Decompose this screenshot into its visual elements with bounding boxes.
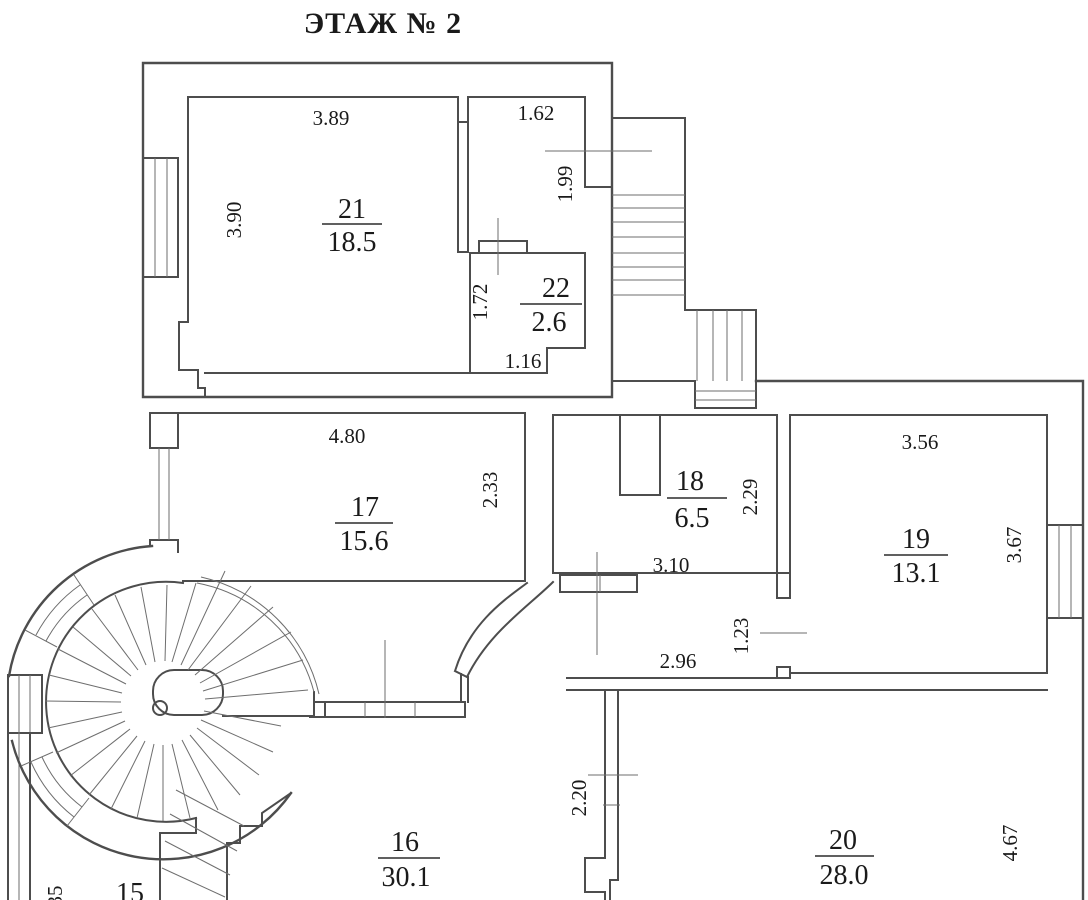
window-room19-right (1047, 525, 1083, 618)
room18-number: 18 (676, 466, 704, 497)
door-sill-room18 (560, 575, 637, 592)
window-room17-left (150, 448, 178, 540)
spiral-newel-post (153, 701, 167, 715)
room18-area: 6.5 (675, 503, 710, 534)
window-tower-west (8, 675, 42, 733)
room18-width-dim: 3.10 (653, 553, 690, 577)
labels: ЭТАЖ № 2 21 18.5 3.89 3.90 1.62 1.99 22 … (43, 7, 1026, 900)
room21-width-dim: 3.89 (313, 106, 350, 130)
walls (143, 63, 1083, 900)
room22-width-dim: 1.16 (505, 349, 542, 373)
window-room21-left (143, 158, 178, 277)
floor-title: ЭТАЖ № 2 (304, 7, 462, 40)
entry-height-dim: 1.99 (553, 166, 577, 203)
room15-number: 15 (116, 878, 144, 900)
room19-width-dim: 3.56 (902, 430, 939, 454)
sill-room16-divisions (365, 702, 415, 717)
room17-area: 15.6 (340, 526, 389, 557)
window-tower-west-panes (19, 675, 30, 733)
room17-height-dim: 2.33 (478, 472, 502, 509)
room20-number: 20 (829, 825, 857, 856)
stair-treads-vertical-flight (612, 195, 685, 295)
room21-height-dim: 3.90 (222, 202, 246, 239)
sill-room16 (310, 692, 465, 717)
room21-area: 18.5 (328, 227, 377, 258)
wall-outer-right (756, 381, 1083, 900)
room17-number: 17 (351, 492, 379, 523)
room19-area: 13.1 (892, 558, 941, 589)
wall-16-20-dim: 2.20 (567, 780, 591, 817)
floor-plan-drawing: ЭТАЖ № 2 21 18.5 3.89 3.90 1.62 1.99 22 … (0, 0, 1088, 900)
room19-number: 19 (902, 524, 930, 555)
room22-height-dim: 1.72 (468, 284, 492, 321)
wall-slot-21-22 (458, 97, 468, 252)
tower-east-rail-arcs (197, 577, 319, 694)
tick-wall-16-20 (588, 775, 638, 805)
room19-height-dim: 3.67 (1002, 527, 1026, 564)
window-room19-right-panes (1059, 525, 1071, 618)
wall-entry-niche (585, 97, 612, 187)
stair-treads-turn-flight (697, 310, 742, 381)
room22-number: 22 (542, 273, 570, 304)
spiral-treads-southeast (182, 711, 281, 810)
room20-area: 28.0 (820, 860, 869, 891)
spiral-hub (153, 670, 223, 715)
room16-number: 16 (391, 827, 419, 858)
window-room17-left-panes (159, 448, 169, 540)
window-room21-left-panes (155, 158, 167, 277)
door-height-dim: 1.23 (729, 618, 753, 655)
room16-area: 30.1 (382, 862, 431, 893)
stair-treads-lower-stub (695, 391, 756, 400)
exit-channel-right-steps (227, 793, 291, 900)
room20-height-dim: 4.67 (998, 825, 1022, 862)
left-edge-partial-dim: 35 (43, 886, 67, 900)
spiral-treads-west (45, 585, 190, 821)
entry-width-dim: 1.62 (518, 101, 555, 125)
room18-height-dim: 2.29 (738, 479, 762, 516)
room17-width-dim: 4.80 (329, 424, 366, 448)
spiral-staircase (9, 546, 319, 900)
wall-corridor-south (567, 678, 1047, 690)
floor-plan-page: ЭТАЖ № 2 21 18.5 3.89 3.90 1.62 1.99 22 … (0, 0, 1088, 900)
wall-curved-passage (455, 582, 553, 702)
tower-outer-arc (9, 546, 291, 859)
room21-number: 21 (338, 194, 366, 225)
dimension-ticks (385, 151, 807, 805)
wall-stair-shaft (612, 118, 756, 408)
room22-area: 2.6 (532, 307, 567, 338)
hall-width-dim: 2.96 (660, 649, 697, 673)
spiral-treads-east (172, 571, 308, 699)
door-jambs-corridor (777, 573, 790, 678)
door-sill-room22 (479, 241, 527, 253)
